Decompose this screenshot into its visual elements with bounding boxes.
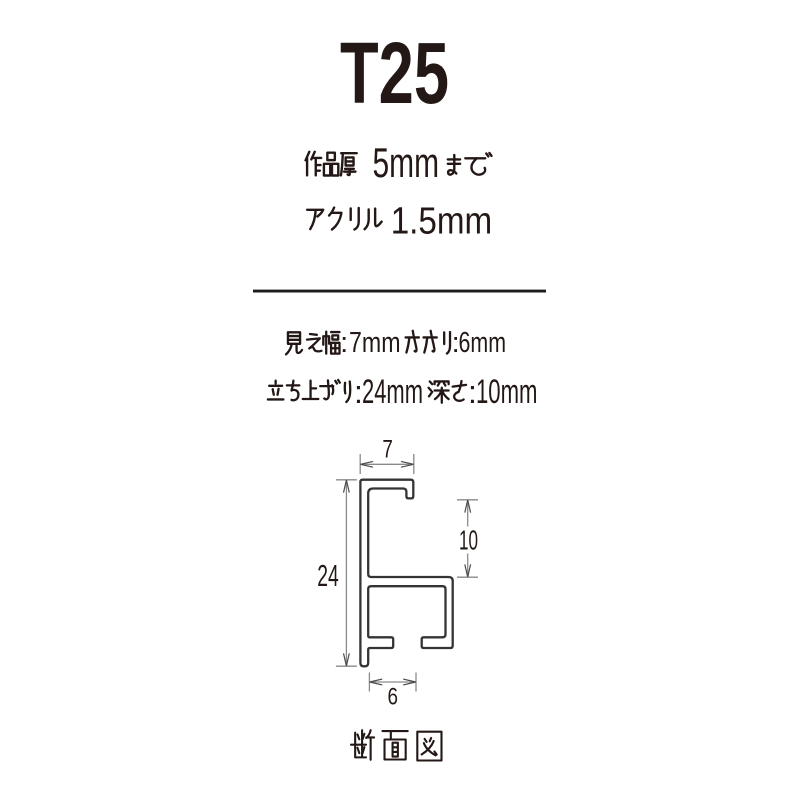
- svg-text:10: 10: [459, 525, 478, 556]
- svg-text::: :: [340, 327, 348, 359]
- svg-text:T25: T25: [340, 25, 449, 122]
- svg-text:6: 6: [388, 684, 399, 711]
- svg-text:24mm: 24mm: [362, 373, 423, 411]
- svg-text:5mm: 5mm: [373, 139, 440, 186]
- svg-text:7: 7: [382, 437, 393, 464]
- svg-text:7mm: 7mm: [349, 327, 401, 359]
- svg-text:6mm: 6mm: [459, 327, 507, 359]
- svg-text:10mm: 10mm: [476, 373, 538, 411]
- svg-text:24: 24: [317, 558, 339, 593]
- svg-text:1.5mm: 1.5mm: [391, 200, 493, 242]
